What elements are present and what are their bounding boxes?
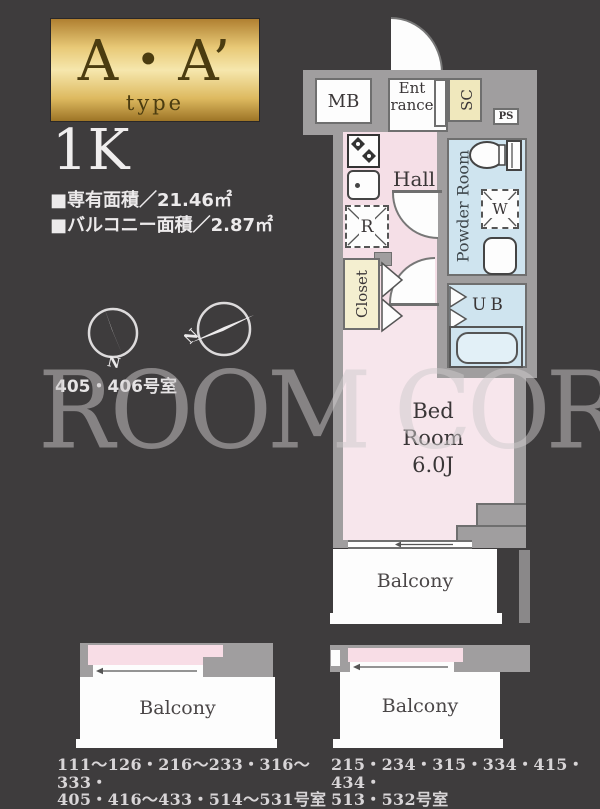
type-name: A・A’ (51, 31, 259, 93)
mini-right-window-arrow-icon (350, 662, 454, 672)
stove-icon (347, 134, 380, 168)
mini-right-baseboard (333, 739, 503, 748)
closet-label: Closet (353, 258, 369, 330)
unit-bath-label: UB (472, 295, 507, 315)
mini-right-notch (331, 650, 340, 666)
hall-label: Hall (393, 167, 435, 191)
mini-left-window (93, 665, 203, 677)
faucet-dot (355, 183, 360, 188)
bath-folding-door-icon (449, 286, 469, 330)
balcony-main-label: Balcony (377, 570, 453, 592)
closet-folding-door-icon (381, 261, 405, 333)
balcony-main: Balcony (333, 549, 497, 613)
balcony-divider-bar (519, 550, 530, 623)
mini-right-balcony-label: Balcony (382, 695, 458, 717)
layout-type: 1K (52, 118, 129, 183)
mini-right-window (350, 662, 454, 672)
powder-sink-icon (483, 237, 517, 275)
mini-right-balcony: Balcony (340, 672, 500, 739)
washing-machine-space: W (481, 189, 519, 229)
pipe-space-box: PS (493, 108, 519, 125)
refrigerator-space: R (345, 205, 389, 248)
mini-left-room-numbers: 111〜126・216〜233・316〜333・ 405・416〜433・514… (57, 756, 332, 809)
refrigerator-label: R (359, 217, 376, 237)
shoe-closet-label: SC (458, 79, 472, 121)
mini-right-room-numbers: 215・234・315・334・415・434・ 513・532号室 (331, 756, 596, 809)
mini-left-balcony-label: Balcony (139, 697, 215, 719)
balcony-area-text: ■バルコニー面積／2.87㎡ (50, 211, 273, 237)
washing-machine-label: W (490, 200, 509, 218)
type-badge: A・A’ type (50, 18, 260, 122)
svg-text:N: N (184, 325, 203, 348)
entrance-door-arc (391, 17, 443, 73)
pipe-space-label: PS (499, 111, 514, 122)
meter-box-label: MB (328, 91, 360, 112)
mini-left-window-arrow-icon (93, 665, 203, 677)
type-word: type (51, 93, 259, 113)
toilet-icon (466, 139, 524, 173)
kitchen-sink-icon (347, 170, 380, 200)
entrance-label: Ent rance (389, 80, 435, 114)
balcony-main-baseboard (330, 613, 502, 624)
mini-left-baseboard (76, 739, 277, 748)
entrance-door-leaf (434, 79, 447, 127)
watermark: ROOM CORE (38, 349, 600, 474)
mini-right-room-strip (348, 648, 463, 662)
room-meter-box: MB (315, 78, 372, 124)
window-arrow-icon (395, 541, 455, 548)
mini-left-room-strip-a (88, 645, 223, 657)
mini-left-room-strip-b (88, 657, 203, 665)
exclusive-area-text: ■専有面積／21.46㎡ (50, 186, 232, 212)
mini-left-balcony: Balcony (80, 677, 275, 739)
